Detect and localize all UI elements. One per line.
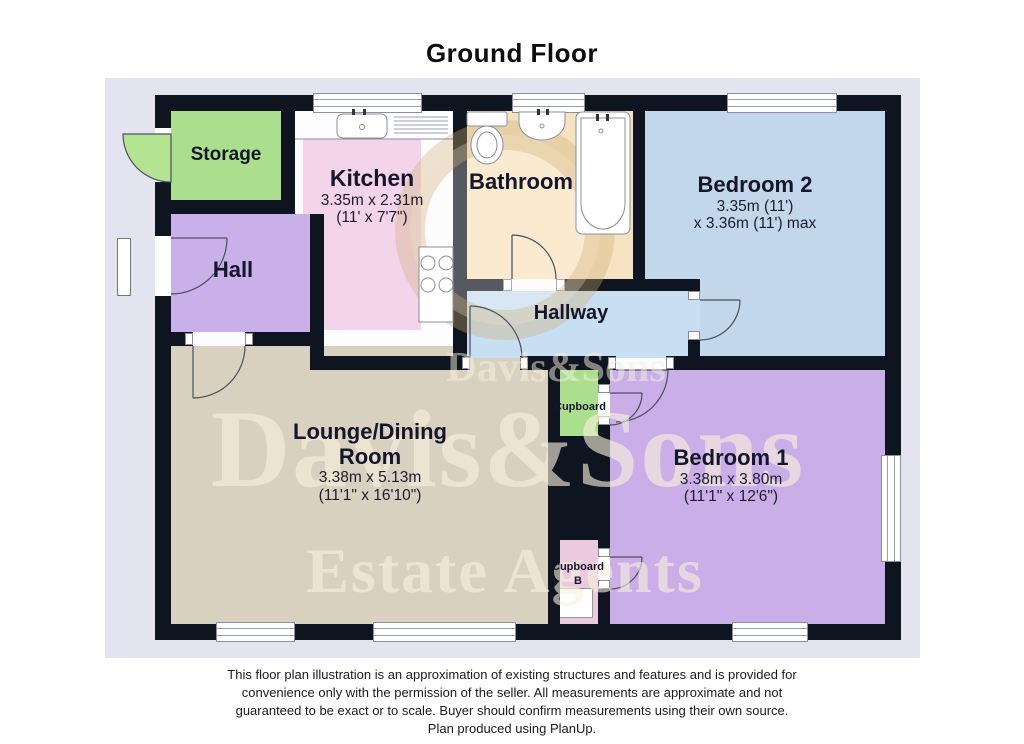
jamb-hall-door-left <box>185 333 193 345</box>
jamb-bathroom-door-right <box>556 279 565 291</box>
wall-hall-bottom-2 <box>245 332 324 346</box>
wall-cupboard-right-2 <box>598 425 610 557</box>
room-bedroom2-lower-floor <box>700 279 885 356</box>
label-bedroom2: Bedroom 2 3.35m (11') x 3.36m (11') max <box>694 173 816 232</box>
disclaimer-line-2: convenience only with the permission of … <box>142 684 882 702</box>
front-door-panel <box>117 238 131 296</box>
window-bedroom1-bottom <box>732 622 808 642</box>
jamb-lounge-door-left <box>462 357 470 369</box>
window-kitchen-top <box>313 93 422 113</box>
room-dim-ft: (11'1" x 12'6") <box>674 488 789 505</box>
jamb-bedroom2-door-bottom <box>688 331 700 340</box>
jamb-hall-door-right <box>245 333 253 345</box>
window-lounge-bottom-2 <box>373 622 516 642</box>
jamb-bedroom1-door-left <box>608 357 616 369</box>
wall-cupboard-right-3 <box>598 589 610 624</box>
room-name-2: Room <box>293 445 447 470</box>
room-name: Cupboard <box>554 400 606 414</box>
window-lounge-bottom-1 <box>216 622 295 642</box>
label-storage: Storage <box>191 144 262 165</box>
label-bathroom: Bathroom <box>469 170 573 195</box>
room-dim-m: 3.38m x 3.80m <box>674 471 789 488</box>
window-bedroom1-right <box>881 455 901 562</box>
disclaimer-line-3: guaranteed to be exact or to scale. Buye… <box>142 702 882 720</box>
label-cupboard: Cupboard <box>554 400 606 414</box>
disclaimer-line-1: This floor plan illustration is an appro… <box>142 666 882 684</box>
page-title: Ground Floor <box>426 38 598 69</box>
room-name: Bathroom <box>469 170 573 195</box>
room-name: Hallway <box>534 302 608 324</box>
room-name: Bedroom 2 <box>694 173 816 198</box>
disclaimer-text: This floor plan illustration is an appro… <box>142 666 882 738</box>
jamb-cupboard-door-bottom <box>598 416 610 425</box>
wall-bedroom2-door-2 <box>688 340 700 356</box>
label-hall: Hall <box>213 258 253 283</box>
label-bedroom1: Bedroom 1 3.38m x 3.80m (11'1" x 12'6") <box>674 446 789 505</box>
label-kitchen: Kitchen 3.35m x 2.31m (11' x 7'7") <box>321 166 424 226</box>
jamb-bathroom-door-left <box>503 279 512 291</box>
jamb-bedroom1-door-right <box>666 357 674 369</box>
room-name: Kitchen <box>321 166 424 192</box>
room-dim-ft: x 3.36m (11') max <box>694 215 816 232</box>
wall-mid-band-1 <box>310 356 470 370</box>
room-name: Storage <box>191 144 262 165</box>
wall-outer-left-3 <box>155 296 171 640</box>
front-door-gap <box>155 236 171 296</box>
window-bedroom2-top <box>727 93 837 113</box>
wall-mid-band-3 <box>666 356 885 370</box>
label-lounge: Lounge/Dining Room 3.38m x 5.13m (11'1" … <box>293 420 447 504</box>
room-bathroom-floor <box>467 111 633 279</box>
wall-storage-right <box>281 111 295 200</box>
room-dim-m: 3.38m x 5.13m <box>293 469 447 486</box>
label-cupboard-b: Cupboard B <box>552 560 604 589</box>
room-name-2: B <box>552 574 604 588</box>
wall-outer-left-1 <box>155 95 171 128</box>
room-dim-m: 3.35m x 2.31m <box>321 192 424 209</box>
cupboard-b-shelf <box>559 588 593 618</box>
disclaimer-line-4: Plan produced using PlanUp. <box>142 720 882 738</box>
storage-door-gap <box>155 128 171 182</box>
room-dim-m: 3.35m (11') <box>694 198 816 215</box>
room-dim-ft: (11' x 7'7") <box>321 209 424 226</box>
room-name: Cupboard <box>552 560 604 574</box>
room-name: Hall <box>213 258 253 283</box>
label-hallway: Hallway <box>534 302 608 324</box>
wall-bathroom-bedroom2 <box>633 111 645 279</box>
jamb-cupboard-door-top <box>598 384 610 393</box>
wall-bathroom-bottom-2 <box>556 279 700 291</box>
floorplan-page: Ground Floor <box>0 0 1024 744</box>
wall-kitchen-bathroom <box>453 111 467 370</box>
wall-storage-bottom <box>155 200 295 214</box>
jamb-bedroom2-door-top <box>688 291 700 300</box>
window-bathroom-top <box>512 93 585 113</box>
room-name: Lounge/Dining <box>293 420 447 445</box>
jamb-cupboard-b-door-top <box>598 548 610 557</box>
jamb-lounge-door-right <box>520 357 528 369</box>
room-dim-ft: (11'1" x 16'10") <box>293 487 447 504</box>
room-name: Bedroom 1 <box>674 446 789 471</box>
